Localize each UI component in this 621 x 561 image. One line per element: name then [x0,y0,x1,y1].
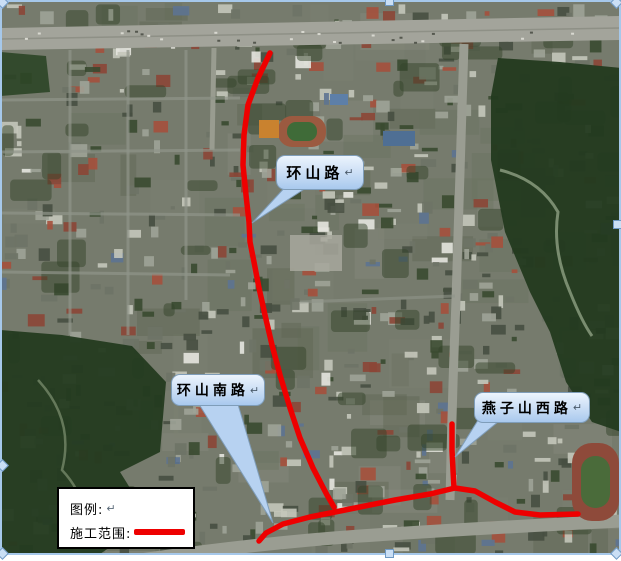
paragraph-mark-icon: ↵ [250,384,259,397]
paragraph-mark-icon: ↵ [344,166,353,179]
callout-yanzishan-west-road[interactable]: 燕子山西路 ↵ [474,392,590,423]
legend-title: 图例: [70,499,103,518]
document-canvas: 环山路 ↵ 环山南路 ↵ 燕子山西路 ↵ 图例: ↵ 施工范围: [0,0,621,561]
legend-box[interactable]: 图例: ↵ 施工范围: [57,487,195,549]
legend-item-label: 施工范围: [70,523,131,542]
callout-huanshan-south-road[interactable]: 环山南路 ↵ [171,374,265,406]
selection-handle-top-center[interactable] [385,0,394,6]
callout-huanshan-road[interactable]: 环山路 ↵ [276,155,364,190]
paragraph-mark-icon: ↵ [573,401,582,414]
satellite-map-image[interactable] [0,0,621,556]
callout-yanzishan-west-road-label: 燕子山西路 [482,398,572,418]
selection-handle-bottom-center[interactable] [385,549,394,558]
callout-huanshan-south-road-label: 环山南路 [177,380,249,400]
callout-huanshan-road-label: 环山路 [286,162,343,183]
selection-handle-right-middle[interactable] [613,220,621,229]
construction-range-swatch [134,529,185,535]
paragraph-mark-icon: ↵ [106,502,116,515]
